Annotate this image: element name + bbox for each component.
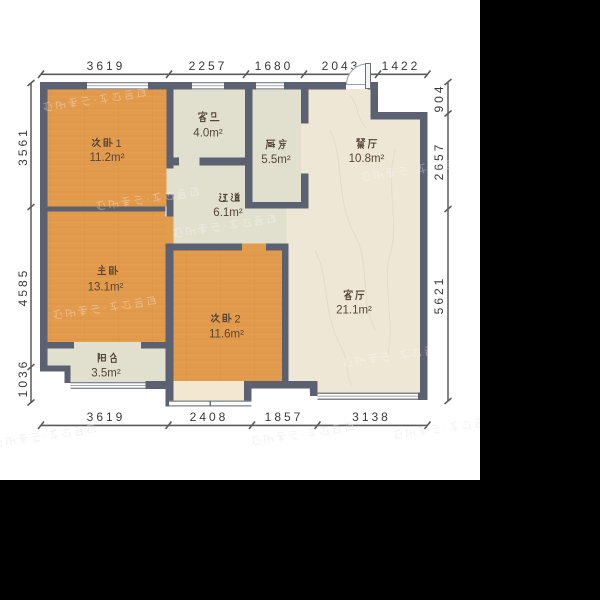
svg-text:3561: 3561 xyxy=(16,127,30,166)
svg-text:1857: 1857 xyxy=(265,410,304,424)
svg-text:10.8m²: 10.8m² xyxy=(349,153,385,165)
svg-text:1680: 1680 xyxy=(255,59,294,73)
svg-text:5.5m²: 5.5m² xyxy=(261,154,291,166)
svg-text:3619: 3619 xyxy=(87,59,126,73)
svg-text:21.1m²: 21.1m² xyxy=(336,305,372,317)
svg-text:11.2m²: 11.2m² xyxy=(90,152,125,164)
svg-text:2: 2 xyxy=(234,314,240,326)
svg-text:1: 1 xyxy=(115,138,121,150)
svg-text:904: 904 xyxy=(432,83,446,112)
svg-text:3138: 3138 xyxy=(352,410,391,424)
svg-text:11.6m²: 11.6m² xyxy=(209,328,244,340)
svg-text:6.1m²: 6.1m² xyxy=(213,207,243,219)
svg-text:13.1m²: 13.1m² xyxy=(88,281,124,293)
svg-text:2408: 2408 xyxy=(190,410,229,424)
svg-text:1036: 1036 xyxy=(16,359,30,398)
svg-text:4.0m²: 4.0m² xyxy=(193,127,223,139)
svg-text:4585: 4585 xyxy=(16,268,30,307)
svg-text:2257: 2257 xyxy=(189,59,228,73)
svg-text:3619: 3619 xyxy=(87,410,126,424)
svg-text:5621: 5621 xyxy=(432,276,446,315)
svg-text:3.5m²: 3.5m² xyxy=(91,367,121,379)
svg-text:1422: 1422 xyxy=(382,59,421,73)
